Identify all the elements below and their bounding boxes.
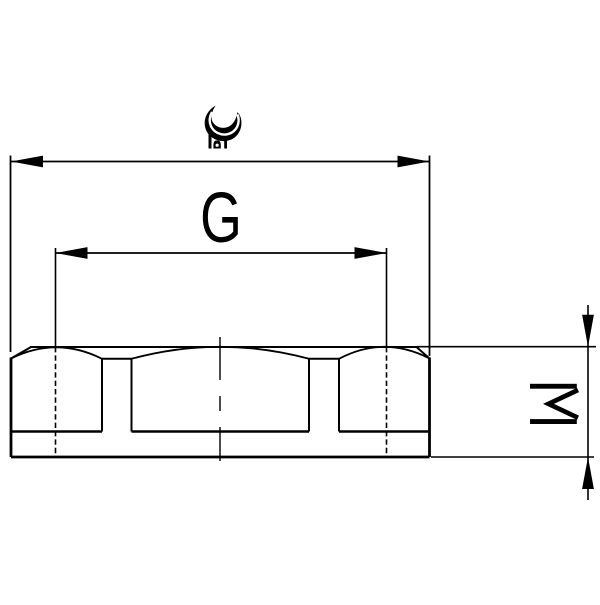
svg-text:G: G (200, 179, 242, 258)
